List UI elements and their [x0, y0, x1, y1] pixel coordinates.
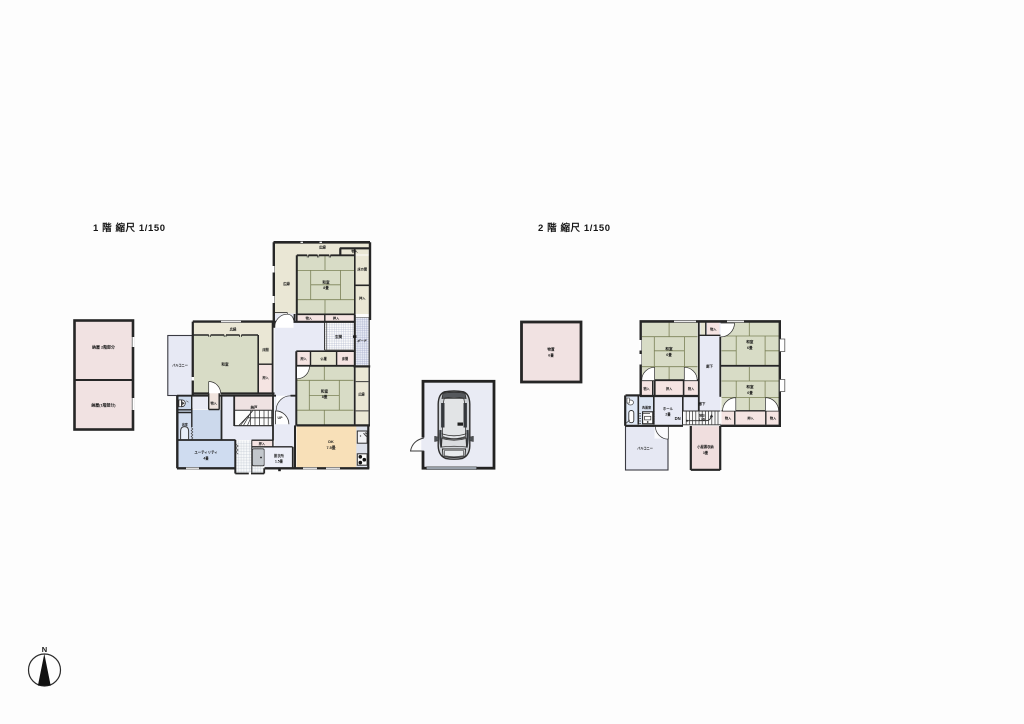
svg-text:玄関: 玄関 — [335, 334, 343, 339]
svg-text:N: N — [42, 645, 47, 654]
svg-text:納屋 2階部分: 納屋 2階部分 — [91, 345, 115, 350]
svg-text:8畳: 8畳 — [322, 394, 328, 399]
svg-text:ホール: ホール — [663, 406, 674, 411]
svg-text:押入: 押入 — [300, 356, 307, 361]
svg-text:和室: 和室 — [220, 362, 229, 367]
svg-text:和室: 和室 — [745, 339, 754, 344]
svg-text:広縁: 広縁 — [319, 244, 326, 249]
svg-text:物入: 物入 — [724, 416, 732, 421]
svg-text:床間: 床間 — [262, 347, 268, 352]
svg-text:6畳: 6畳 — [666, 352, 672, 357]
svg-text:UP: UP — [278, 416, 284, 420]
svg-text:6畳: 6畳 — [747, 345, 753, 350]
svg-text:押入: 押入 — [333, 315, 340, 320]
svg-text:和室: 和室 — [745, 384, 754, 389]
svg-text:納屋(1階部分): 納屋(1階部分) — [90, 403, 116, 408]
svg-text:押入: 押入 — [666, 386, 673, 391]
svg-text:小屋裏収納: 小屋裏収納 — [696, 444, 714, 449]
svg-text:物入: 物入 — [350, 248, 358, 253]
svg-text:DK: DK — [328, 440, 334, 444]
svg-text:2 階 縮尺 1/150: 2 階 縮尺 1/150 — [538, 222, 611, 234]
svg-text:3畳: 3畳 — [703, 450, 709, 455]
svg-text:廊下: 廊下 — [698, 401, 706, 406]
svg-text:バルコニー: バルコニー — [172, 363, 188, 368]
svg-text:階段: 階段 — [699, 414, 705, 418]
svg-text:物入: 物入 — [769, 416, 777, 421]
svg-text:廊下: 廊下 — [705, 364, 713, 369]
svg-text:1 階 縮尺 1/150: 1 階 縮尺 1/150 — [93, 222, 166, 234]
svg-text:押入: 押入 — [359, 296, 366, 301]
svg-text:床の間: 床の間 — [358, 266, 368, 271]
svg-text:6畳: 6畳 — [747, 390, 753, 395]
svg-text:バルコニー: バルコニー — [637, 446, 653, 451]
svg-text:DN: DN — [675, 416, 681, 421]
svg-text:4畳: 4畳 — [203, 456, 209, 461]
svg-text:6畳: 6畳 — [548, 353, 554, 358]
svg-text:広縁: 広縁 — [283, 281, 290, 286]
svg-text:ポーチ: ポーチ — [357, 339, 367, 343]
svg-text:1.5畳: 1.5畳 — [275, 459, 284, 464]
svg-text:床間: 床間 — [342, 356, 348, 361]
svg-text:物入: 物入 — [305, 315, 313, 320]
svg-text:仏壇: 仏壇 — [319, 356, 327, 361]
svg-text:8畳: 8畳 — [323, 285, 329, 290]
svg-text:物入: 物入 — [210, 401, 218, 406]
svg-text:洗面室: 洗面室 — [642, 405, 651, 410]
svg-text:ユーティリティ: ユーティリティ — [194, 450, 217, 455]
svg-text:押入: 押入 — [259, 441, 266, 446]
svg-text:広縁: 広縁 — [230, 327, 237, 332]
svg-text:脱衣所: 脱衣所 — [273, 453, 285, 458]
svg-text:押入: 押入 — [262, 375, 269, 380]
svg-text:納戸: 納戸 — [250, 405, 258, 410]
svg-text:押入: 押入 — [747, 416, 754, 421]
svg-text:物入: 物入 — [687, 386, 695, 391]
svg-text:浴室: 浴室 — [182, 421, 188, 426]
svg-text:1.5畳: 1.5畳 — [699, 418, 706, 422]
svg-text:和室: 和室 — [321, 280, 330, 285]
svg-text:2畳: 2畳 — [665, 412, 671, 417]
svg-text:和室: 和室 — [320, 389, 329, 394]
svg-text:物入: 物入 — [709, 327, 717, 332]
svg-text:7.5畳: 7.5畳 — [326, 445, 335, 450]
svg-text:和室: 和室 — [664, 346, 673, 351]
svg-text:物置: 物置 — [547, 347, 555, 352]
svg-text:物入: 物入 — [642, 386, 650, 391]
svg-text:広縁: 広縁 — [358, 392, 365, 397]
